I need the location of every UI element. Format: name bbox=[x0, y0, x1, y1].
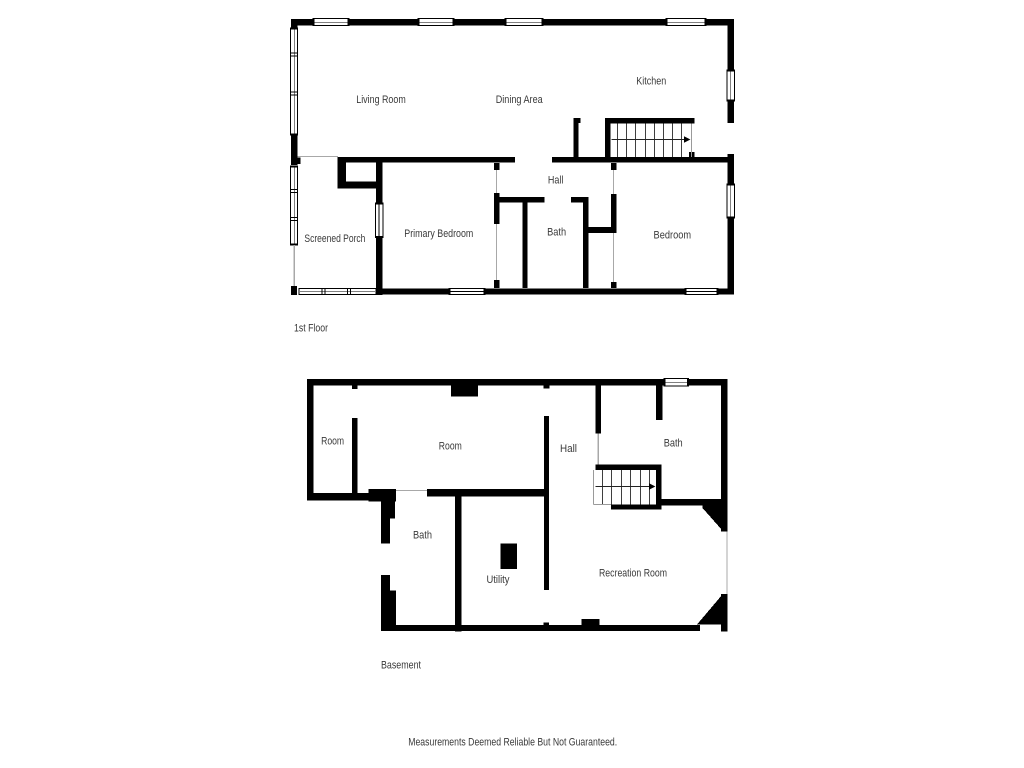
svg-text:Hall: Hall bbox=[548, 175, 564, 187]
svg-text:1st Floor: 1st Floor bbox=[294, 323, 328, 335]
svg-text:Living Room: Living Room bbox=[356, 94, 406, 106]
svg-text:Room: Room bbox=[439, 441, 462, 453]
svg-text:Bath: Bath bbox=[547, 227, 566, 239]
svg-text:Hall: Hall bbox=[560, 443, 577, 455]
svg-text:Bath: Bath bbox=[413, 530, 432, 542]
svg-text:Dining Area: Dining Area bbox=[496, 94, 544, 106]
svg-text:Bath: Bath bbox=[664, 438, 683, 450]
svg-text:Screened Porch: Screened Porch bbox=[304, 233, 365, 245]
svg-text:Utility: Utility bbox=[487, 574, 510, 586]
svg-text:Measurements Deemed Reliable B: Measurements Deemed Reliable But Not Gua… bbox=[408, 737, 617, 749]
svg-text:Basement: Basement bbox=[381, 660, 421, 672]
svg-text:Kitchen: Kitchen bbox=[636, 76, 666, 88]
svg-text:Room: Room bbox=[321, 436, 344, 448]
svg-text:Recreation Room: Recreation Room bbox=[599, 568, 667, 580]
svg-text:Bedroom: Bedroom bbox=[654, 230, 692, 242]
svg-text:Primary Bedroom: Primary Bedroom bbox=[404, 228, 473, 240]
